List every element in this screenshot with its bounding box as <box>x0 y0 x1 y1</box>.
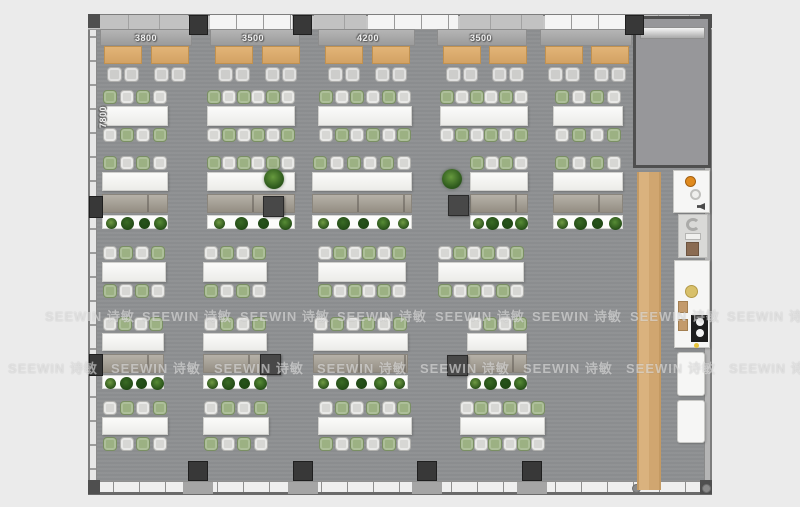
chair <box>460 401 474 415</box>
row-b-desk-table <box>470 172 528 191</box>
chair <box>460 437 474 451</box>
structural-pillar <box>625 15 644 35</box>
chair <box>350 401 364 415</box>
row-c-desk-table <box>438 262 524 282</box>
plant <box>484 377 497 390</box>
chair <box>382 437 396 451</box>
chair <box>397 437 411 451</box>
chair <box>397 401 411 415</box>
chair <box>136 128 150 142</box>
chair <box>555 156 569 170</box>
chair <box>103 156 117 170</box>
chair <box>120 401 134 415</box>
watermark: SEEWIN 诗敏 <box>214 358 304 377</box>
round-sink-icon <box>685 285 698 298</box>
row-c-desk-table <box>203 262 267 282</box>
chair <box>565 67 580 82</box>
row-d-desk-table <box>467 333 527 351</box>
chair <box>237 401 251 415</box>
plant <box>592 218 603 229</box>
chair <box>120 128 134 142</box>
chair <box>517 401 531 415</box>
row-a-desk-table <box>102 106 168 126</box>
plant <box>121 217 134 230</box>
chair <box>266 90 280 104</box>
row-e-desk-table <box>102 417 168 435</box>
chair <box>382 90 396 104</box>
chair <box>207 156 221 170</box>
banquette-table <box>545 46 583 64</box>
chair <box>481 284 495 298</box>
chair <box>496 284 510 298</box>
chair <box>237 90 251 104</box>
sink-basin-icon <box>690 189 701 200</box>
dimension-label-top-2: 3500 <box>242 33 264 43</box>
chair <box>397 90 411 104</box>
plant <box>609 217 622 230</box>
chair <box>251 128 265 142</box>
corner-pin <box>702 484 711 493</box>
chair <box>481 246 495 260</box>
chair <box>514 128 528 142</box>
plant <box>356 378 367 389</box>
chair <box>136 401 150 415</box>
chair <box>154 67 169 82</box>
window-pane <box>210 15 292 29</box>
row-c-desk-table <box>102 262 166 282</box>
banquette-table <box>151 46 189 64</box>
plant <box>337 217 350 230</box>
window-pane <box>545 15 626 29</box>
banquette-bench <box>540 29 632 46</box>
plant <box>207 378 218 389</box>
plant <box>557 218 568 229</box>
chair <box>124 67 139 82</box>
chair <box>503 437 517 451</box>
chair <box>572 156 586 170</box>
chair <box>266 128 280 142</box>
structural-pillar <box>188 461 208 481</box>
chair <box>492 67 507 82</box>
wall-panel <box>183 482 213 494</box>
chair <box>594 67 609 82</box>
chair <box>607 156 621 170</box>
watermark: SEEWIN 诗敏 <box>45 306 135 325</box>
plant <box>258 218 269 229</box>
chair <box>382 128 396 142</box>
chair <box>335 90 349 104</box>
banquette-table <box>262 46 300 64</box>
chair <box>499 128 513 142</box>
floor-plan-canvas: 3800 3500 4200 3500 7800 SEEWIN 诗敏SEEWIN… <box>0 0 800 507</box>
planter-box <box>313 375 408 389</box>
chair <box>555 90 569 104</box>
chair <box>590 128 604 142</box>
dimension-label-top-1: 3800 <box>135 33 157 43</box>
watermark: SEEWIN 诗敏 <box>727 306 800 325</box>
plant <box>279 217 292 230</box>
chair <box>514 156 528 170</box>
pantry-counter-unit <box>674 260 710 348</box>
plant <box>358 218 369 229</box>
chair <box>397 128 411 142</box>
structural-pillar <box>417 461 437 481</box>
counter-tray-icon <box>685 233 701 240</box>
chair <box>333 246 347 260</box>
chair <box>252 284 266 298</box>
chair <box>153 90 167 104</box>
chair <box>103 128 117 142</box>
watermark: SEEWIN 诗敏 <box>626 358 716 377</box>
chair <box>607 90 621 104</box>
plant <box>500 378 511 389</box>
chair <box>517 437 531 451</box>
chair <box>328 67 343 82</box>
window-pane <box>368 15 458 29</box>
row-b-desk-table <box>312 172 412 191</box>
meeting-room <box>633 16 711 168</box>
wall-panel <box>314 15 366 29</box>
chair <box>496 246 510 260</box>
credenza <box>312 194 412 213</box>
chair <box>251 156 265 170</box>
chair <box>318 284 332 298</box>
chair <box>319 401 333 415</box>
stove-burner-icon <box>685 176 696 187</box>
structural-pillar <box>89 196 103 218</box>
chair <box>348 246 362 260</box>
planter-box <box>102 375 164 389</box>
chair <box>252 246 266 260</box>
chair <box>204 437 218 451</box>
chair <box>548 67 563 82</box>
chair <box>103 401 117 415</box>
row-e-desk-table <box>318 417 412 435</box>
chair <box>348 284 362 298</box>
watermark: SEEWIN 诗敏 <box>532 306 622 325</box>
chair <box>265 67 280 82</box>
chair <box>366 90 380 104</box>
plant <box>515 217 528 230</box>
row-a-desk-table <box>553 106 623 126</box>
structural-pillar <box>189 15 208 35</box>
chair <box>153 437 167 451</box>
chair <box>350 437 364 451</box>
chair <box>455 90 469 104</box>
faucet-icon <box>697 203 705 210</box>
chair <box>488 401 502 415</box>
plant <box>235 217 248 230</box>
chair <box>107 67 122 82</box>
chair <box>555 128 569 142</box>
chair <box>136 437 150 451</box>
plant <box>106 218 117 229</box>
watermark: SEEWIN 诗敏 <box>729 358 800 377</box>
chair <box>366 401 380 415</box>
chair <box>446 67 461 82</box>
credenza <box>102 194 168 213</box>
chair <box>531 437 545 451</box>
chair <box>510 284 524 298</box>
banquette-table <box>325 46 363 64</box>
chair <box>204 401 218 415</box>
row-c-desk-table <box>318 262 406 282</box>
row-d-desk-table <box>203 333 267 351</box>
chair <box>335 437 349 451</box>
chair <box>590 156 604 170</box>
chair <box>313 156 327 170</box>
plant <box>574 217 587 230</box>
planter-box <box>102 215 168 229</box>
wall-panel <box>460 15 543 29</box>
plant <box>336 377 349 390</box>
chair <box>470 156 484 170</box>
chair <box>335 401 349 415</box>
chair <box>120 156 134 170</box>
dimension-label-left: 7800 <box>98 106 108 128</box>
chair <box>350 128 364 142</box>
banquette-table <box>215 46 253 64</box>
chair <box>103 246 117 260</box>
chair <box>136 90 150 104</box>
chair <box>392 246 406 260</box>
plant <box>514 377 527 390</box>
chair <box>474 437 488 451</box>
chair <box>218 67 233 82</box>
watermark: SEEWIN 诗敏 <box>523 358 613 377</box>
coffee-machine-icon <box>686 242 699 256</box>
chair <box>319 128 333 142</box>
chair <box>120 90 134 104</box>
wall-panel <box>288 482 318 494</box>
chair <box>221 401 235 415</box>
credenza <box>470 194 528 213</box>
chair <box>377 284 391 298</box>
chair <box>572 128 586 142</box>
row-d-desk-table <box>102 333 164 351</box>
watermark: SEEWIN 诗敏 <box>142 306 232 325</box>
chair <box>319 90 333 104</box>
planter-box <box>203 375 267 389</box>
chair <box>333 284 347 298</box>
dimension-label-top-3: 4200 <box>357 33 379 43</box>
chair <box>345 67 360 82</box>
chair <box>171 67 186 82</box>
watermark: SEEWIN 诗敏 <box>240 306 330 325</box>
chair <box>222 156 236 170</box>
plant <box>470 378 481 389</box>
plant <box>318 378 329 389</box>
chair <box>463 67 478 82</box>
banquette-table <box>372 46 410 64</box>
floor-plant <box>264 169 284 189</box>
chair <box>120 437 134 451</box>
chair <box>484 128 498 142</box>
chair <box>266 156 280 170</box>
banquette-table <box>104 46 142 64</box>
plant <box>222 377 235 390</box>
row-a-desk-table <box>318 106 412 126</box>
chair <box>204 284 218 298</box>
wall-panel <box>412 482 442 494</box>
side-table <box>677 400 705 443</box>
chair <box>366 128 380 142</box>
chair <box>510 246 524 260</box>
structural-pillar <box>293 15 312 35</box>
chair <box>281 90 295 104</box>
corner-block <box>88 480 100 494</box>
chair <box>335 128 349 142</box>
banquette-table <box>591 46 629 64</box>
row-a-desk-table <box>440 106 528 126</box>
chair <box>237 156 251 170</box>
chair <box>474 401 488 415</box>
chair <box>453 284 467 298</box>
chair <box>222 90 236 104</box>
chair <box>382 401 396 415</box>
chair <box>607 128 621 142</box>
pantry-sink-unit <box>673 170 710 213</box>
chair <box>438 284 452 298</box>
chair <box>611 67 626 82</box>
row-d-desk-table <box>313 333 408 351</box>
chair <box>153 128 167 142</box>
chair <box>103 284 117 298</box>
pantry-fixture-unit <box>678 214 708 258</box>
structural-pillar <box>293 461 313 481</box>
chair <box>488 437 502 451</box>
chair <box>377 246 391 260</box>
watermark: SEEWIN 诗敏 <box>337 306 427 325</box>
chair <box>362 246 376 260</box>
chair <box>237 437 251 451</box>
chair <box>254 437 268 451</box>
chair <box>438 246 452 260</box>
floor-plant <box>442 169 462 189</box>
chair <box>318 246 332 260</box>
chair <box>119 284 133 298</box>
chair <box>499 156 513 170</box>
chair <box>136 156 150 170</box>
round-fixture-icon <box>686 218 700 231</box>
chair <box>103 437 117 451</box>
chair <box>470 128 484 142</box>
chair <box>375 67 390 82</box>
chair <box>222 128 236 142</box>
banquette-table <box>443 46 481 64</box>
corner-block <box>88 14 100 28</box>
chair <box>467 246 481 260</box>
chair <box>207 128 221 142</box>
wood-floor-strip <box>637 172 661 490</box>
chair <box>151 284 165 298</box>
chair <box>397 156 411 170</box>
plant <box>398 218 409 229</box>
chair <box>330 156 344 170</box>
whiteboard <box>640 27 705 39</box>
plant <box>318 218 329 229</box>
watermark: SEEWIN 诗敏 <box>317 358 407 377</box>
chair <box>455 128 469 142</box>
plant <box>374 377 387 390</box>
chair <box>237 128 251 142</box>
chair <box>347 156 361 170</box>
burner-icon <box>696 329 704 337</box>
row-e-desk-table <box>460 417 545 435</box>
chair <box>467 284 481 298</box>
credenza <box>553 194 623 213</box>
chair <box>485 156 499 170</box>
chair <box>236 284 250 298</box>
chair <box>251 90 265 104</box>
chair <box>204 246 218 260</box>
structural-pillar <box>522 461 542 481</box>
chair <box>440 128 454 142</box>
plant <box>136 378 147 389</box>
row-b-desk-table <box>102 172 168 191</box>
interior-column <box>263 196 284 217</box>
wall-panel <box>98 15 188 29</box>
banquette-table <box>489 46 527 64</box>
chair <box>392 67 407 82</box>
plant <box>214 218 225 229</box>
watermark: SEEWIN 诗敏 <box>435 306 525 325</box>
chair <box>484 90 498 104</box>
chair <box>440 90 454 104</box>
chair <box>362 284 376 298</box>
plant <box>105 378 116 389</box>
plant <box>120 377 133 390</box>
chair <box>453 246 467 260</box>
chair <box>392 284 406 298</box>
row-a-desk-table <box>207 106 295 126</box>
plant <box>239 378 250 389</box>
chair <box>236 246 250 260</box>
chair <box>220 246 234 260</box>
plant <box>394 378 405 389</box>
chair <box>514 90 528 104</box>
chair <box>254 401 268 415</box>
dimension-label-top-4: 3500 <box>470 33 492 43</box>
chair <box>590 90 604 104</box>
planter-box <box>312 215 412 229</box>
chair <box>363 156 377 170</box>
plant <box>486 217 499 230</box>
interior-column <box>448 195 469 216</box>
watermark: SEEWIN 诗敏 <box>111 358 201 377</box>
chair <box>135 284 149 298</box>
plant <box>139 218 150 229</box>
chair <box>531 401 545 415</box>
chair <box>282 67 297 82</box>
chair <box>103 90 117 104</box>
plant <box>377 217 390 230</box>
plant <box>154 217 167 230</box>
planter-box <box>467 375 527 389</box>
bottom-window-wall <box>88 481 712 495</box>
planter-box <box>553 215 623 229</box>
row-e-desk-table <box>203 417 269 435</box>
planter-box <box>207 215 295 229</box>
chair <box>153 401 167 415</box>
row-b-desk-table <box>553 172 623 191</box>
chair <box>221 437 235 451</box>
watermark: SEEWIN 诗敏 <box>8 358 98 377</box>
planter-box <box>470 215 528 229</box>
chair <box>503 401 517 415</box>
watermark: SEEWIN 诗敏 <box>420 358 510 377</box>
chair <box>470 90 484 104</box>
